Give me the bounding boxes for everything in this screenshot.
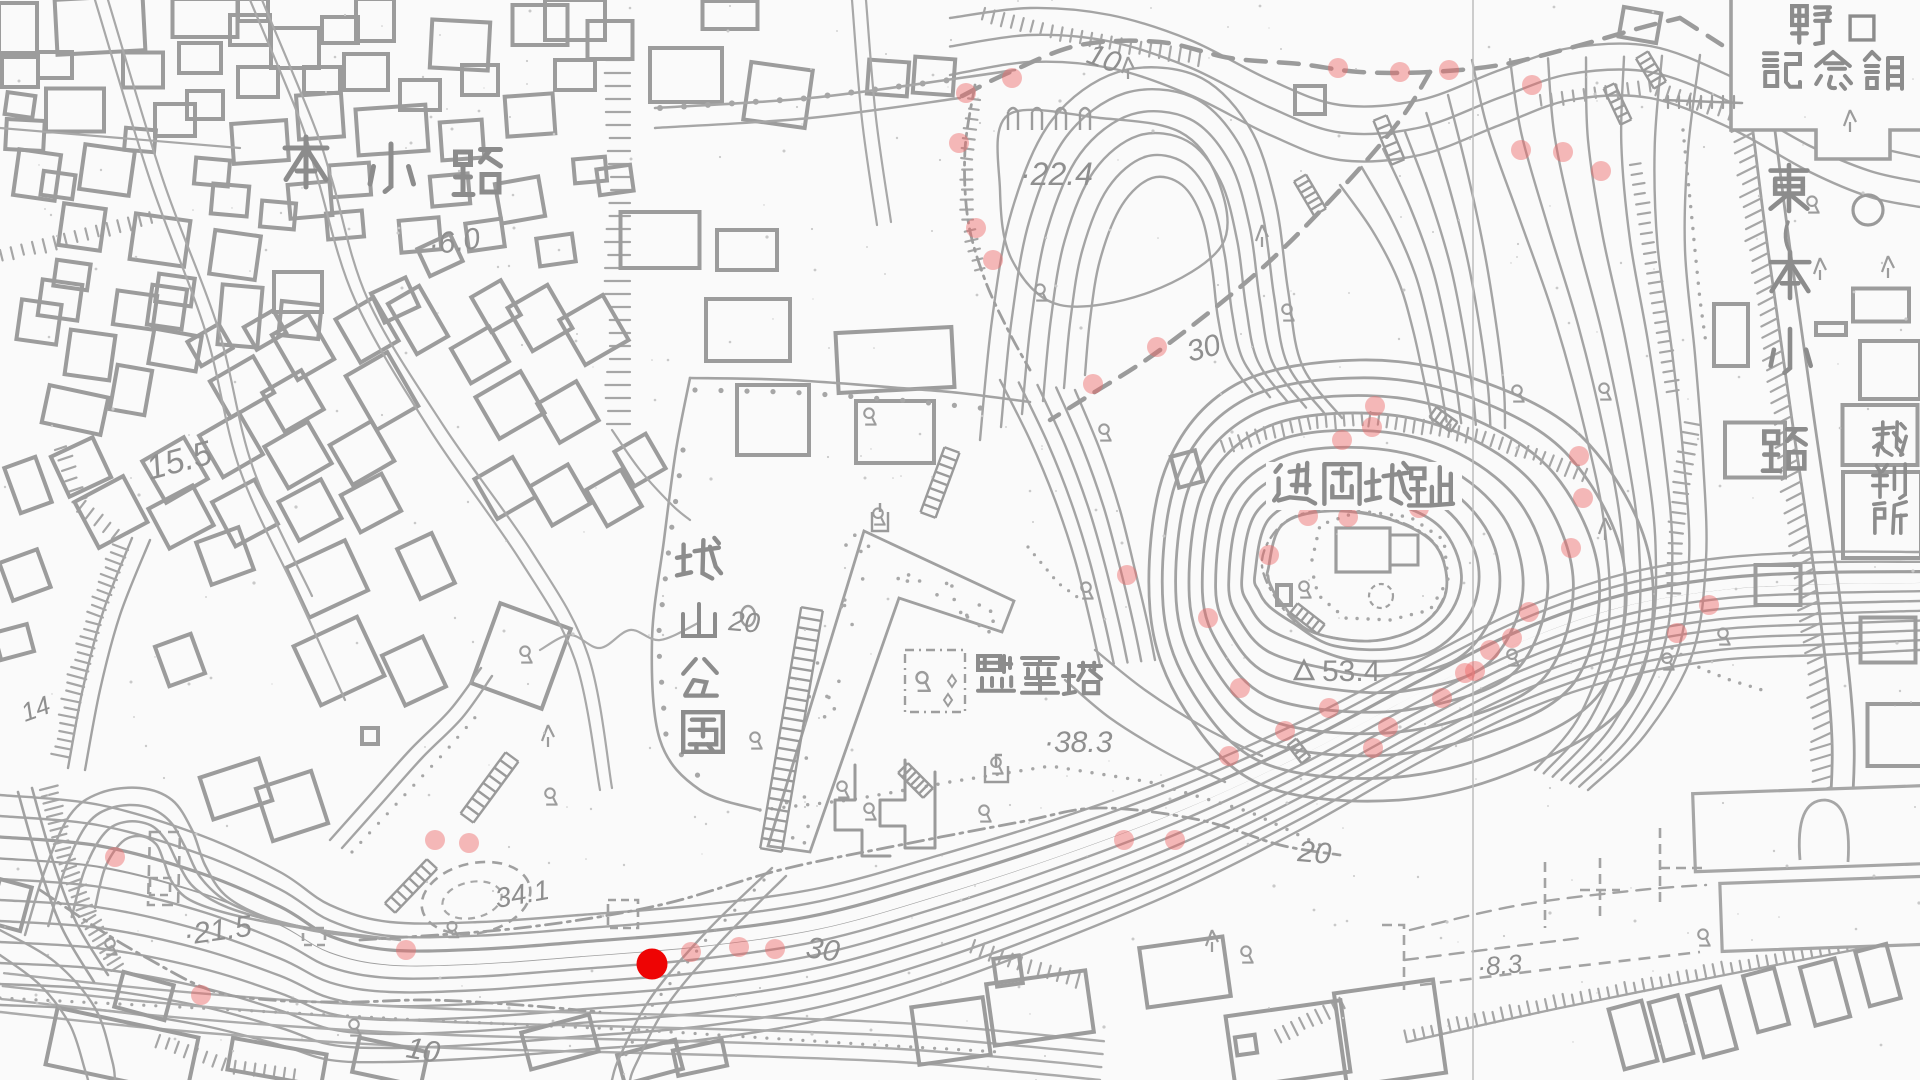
svg-text:20: 20 [726, 605, 761, 639]
svg-text:·8.3: ·8.3 [1476, 948, 1524, 982]
svg-text:30: 30 [804, 931, 842, 968]
svg-text:·22.4: ·22.4 [1020, 156, 1093, 192]
svg-text:·38.3: ·38.3 [1044, 726, 1113, 759]
svg-text:53.4: 53.4 [1322, 655, 1380, 688]
svg-text:10: 10 [404, 1031, 443, 1069]
svg-text:20: 20 [1295, 835, 1332, 871]
